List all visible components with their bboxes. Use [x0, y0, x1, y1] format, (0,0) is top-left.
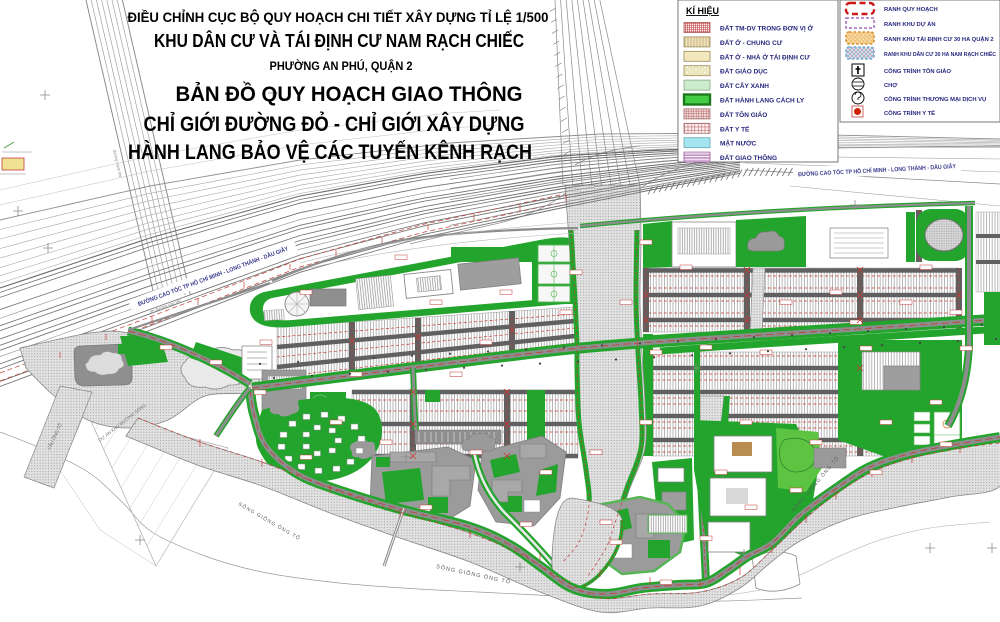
svg-text:BẢN ĐỒ QUY HOẠCH GIAO THÔNG: BẢN ĐỒ QUY HOẠCH GIAO THÔNG: [176, 82, 523, 106]
svg-text:RANH KHU TÁI ĐỊNH CƯ 30 HA QUẬ: RANH KHU TÁI ĐỊNH CƯ 30 HA QUẬN 2: [884, 36, 994, 43]
svg-text:HÀNH LANG BẢO VỆ CÁC TUYẾN KÊN: HÀNH LANG BẢO VỆ CÁC TUYẾN KÊNH RẠCH: [128, 140, 532, 164]
svg-text:CHỢ: CHỢ: [884, 83, 897, 89]
svg-text:CÔNG TRÌNH Y TẾ: CÔNG TRÌNH Y TẾ: [884, 109, 935, 117]
svg-text:RANH QUY HOẠCH: RANH QUY HOẠCH: [884, 7, 938, 13]
svg-text:MẬT NƯỚC: MẬT NƯỚC: [720, 139, 757, 148]
svg-text:RANH KHU DỰ ÁN: RANH KHU DỰ ÁN: [884, 21, 936, 28]
svg-text:CHỈ GIỚI ĐƯỜNG ĐỎ - CHỈ GIỚI X: CHỈ GIỚI ĐƯỜNG ĐỎ - CHỈ GIỚI XÂY DỰNG: [144, 112, 525, 136]
svg-text:CÔNG TRÌNH TÔN GIÁO: CÔNG TRÌNH TÔN GIÁO: [884, 67, 951, 75]
svg-text:RANH KHU DÂN CƯ 30 HA NAM RẠCH: RANH KHU DÂN CƯ 30 HA NAM RẠCH CHIẾC: [884, 51, 996, 58]
svg-text:CÔNG TRÌNH THƯƠNG MẠI DỊCH VỤ: CÔNG TRÌNH THƯƠNG MẠI DỊCH VỤ: [884, 95, 986, 103]
svg-text:ĐIỀU CHỈNH CỤC BỘ QUY HOẠCH CH: ĐIỀU CHỈNH CỤC BỘ QUY HOẠCH CHI TIẾT XÂY…: [128, 8, 549, 25]
svg-text:PHƯỜNG AN PHÚ, QUẬN 2: PHƯỜNG AN PHÚ, QUẬN 2: [270, 60, 413, 73]
svg-text:KÍ HIỆU: KÍ HIỆU: [686, 5, 719, 16]
svg-text:KHU DÂN CƯ VÀ TÁI ĐỊNH CƯ NAM: KHU DÂN CƯ VÀ TÁI ĐỊNH CƯ NAM RẠCH CHIẾC: [154, 30, 524, 51]
